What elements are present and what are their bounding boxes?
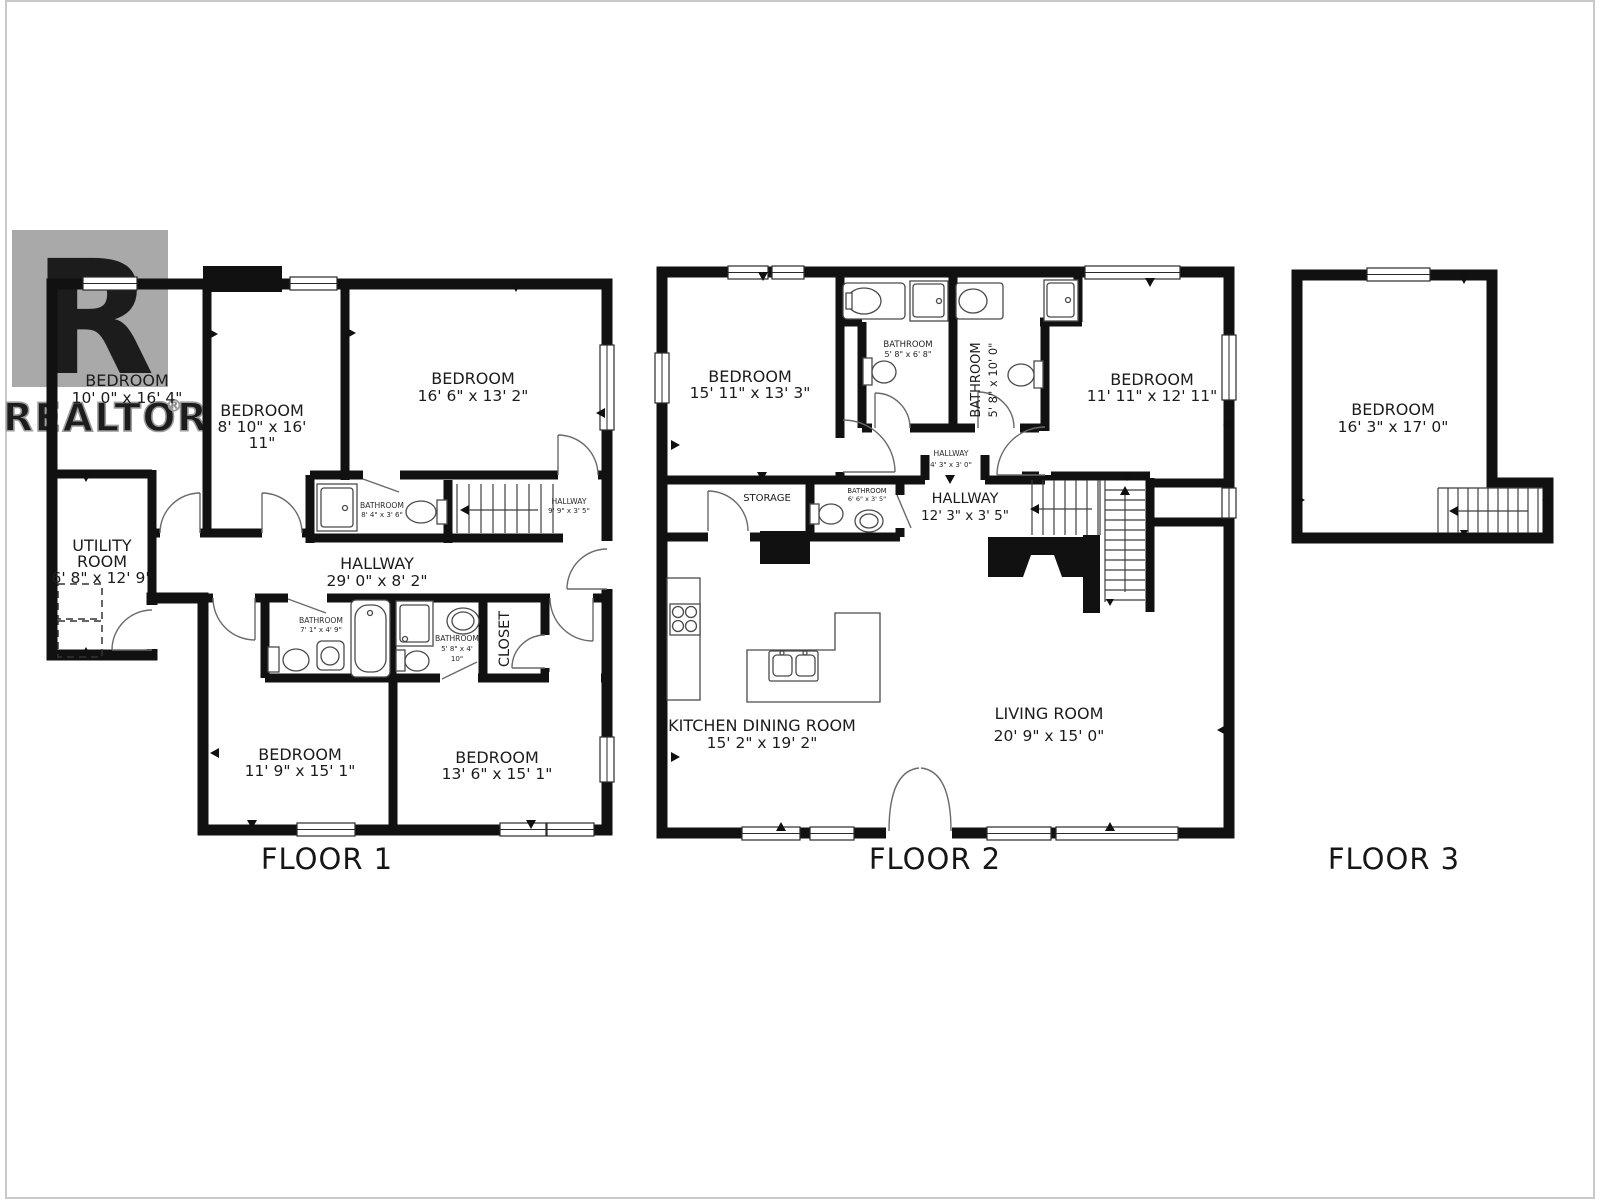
room-label-bedroom: BEDROOM [1351,400,1435,419]
room-dims-bathroom-right2: 10" [451,654,463,663]
room-dims-bedroom-tm2: 11" [249,434,276,452]
floor2-wall-block [760,531,810,564]
room-label-hallway-stairs: HALLWAY [551,497,586,506]
floor1-wall-header [203,266,282,292]
sink-icon [317,641,344,670]
room-dims-bedroom-tl: 15' 11" x 13' 3" [690,384,811,402]
double-sink-icon [769,651,818,681]
room-dims-bedroom-tl: 10' 0" x 16' 4" [72,389,183,407]
room-dims-utility: 6' 8" x 12' 9" [52,569,153,587]
room-label-bathroom-tm: BATHROOM [883,340,932,350]
room-dims-hallway-main: 29' 0" x 8' 2" [327,572,428,590]
shower-icon [1044,280,1078,321]
room-label-bathroom-left: BATHROOM [299,616,343,625]
room-dims-bedroom-br: 13' 6" x 15' 1" [442,765,553,783]
room-label-bedroom-tr: BEDROOM [431,369,515,388]
room-label-living: LIVING ROOM [995,704,1104,723]
room-dims-bathroom-right: 5' 8" x 4' [441,644,473,653]
sink-icon [855,510,883,532]
room-dims-kitchen: 15' 2" x 19' 2" [707,734,818,752]
room-label-bathroom-ms: BATHROOM [847,487,886,495]
room-label-kitchen: KITCHEN DINING ROOM [668,716,856,735]
floor1-caption: FLOOR 1 [261,842,393,876]
room-label-storage: STORAGE [743,493,791,504]
room-dims-bathroom-left: 7' 1" x 4' 9" [300,625,342,634]
room-dims-hallway-stairs: 9' 9" x 3' 5" [548,506,590,515]
floor2-caption: FLOOR 2 [869,842,1001,876]
sink-icon [447,608,479,634]
bathtub-icon [843,283,905,319]
room-label-hallway-small: HALLWAY [933,449,968,458]
room-label-bathroom-tv: BATHROOM [969,342,984,417]
room-dims-hallway-mid: 12' 3" x 3' 5" [921,508,1009,524]
sink-icon [956,283,1003,319]
room-label-hallway-mid: HALLWAY [932,491,999,507]
shower-icon [396,601,433,646]
room-dims-living: 20' 9" x 15' 0" [994,727,1105,745]
room-label-hallway-main: HALLWAY [340,554,414,573]
stove-icon [670,604,700,635]
toilet-icon [406,500,447,524]
room-dims-bedroom: 16' 3" x 17' 0" [1338,418,1449,436]
kitchen-counter [667,578,700,700]
toilet-icon [396,650,429,671]
room-dims-hallway-small: 4' 3" x 3' 0" [930,460,972,469]
room-dims-bathroom-tv: 5' 8" x 10' 0" [986,343,1000,418]
room-label-bathroom-mid: BATHROOM [360,501,404,510]
room-dims-bedroom-tr: 11' 11" x 12' 11" [1087,387,1218,405]
room-dims-bathroom-ms: 6' 6" x 3' 5" [848,495,886,503]
floor3-caption: FLOOR 3 [1328,842,1460,876]
floorplan-image: R REALTOR ® [0,0,1600,1200]
shower-icon [910,281,948,321]
bathtub-icon [351,600,390,677]
room-dims-bedroom-tr: 16' 6" x 13' 2" [418,387,529,405]
room-dims-bathroom-mid: 8' 4" x 3' 6" [361,510,403,519]
room-dims-bathroom-tm: 5' 8" x 6' 8" [884,350,931,359]
toilet-icon [810,504,843,524]
floor3-windows [1367,268,1430,281]
room-label-closet: CLOSET [497,611,513,667]
shower-icon [317,484,357,531]
room-label-bedroom-tl: BEDROOM [85,371,169,390]
room-label-bathroom-right: BATHROOM [435,634,479,643]
toilet-icon [268,647,309,672]
room-dims-bedroom-bl: 11' 9" x 15' 1" [245,762,356,780]
